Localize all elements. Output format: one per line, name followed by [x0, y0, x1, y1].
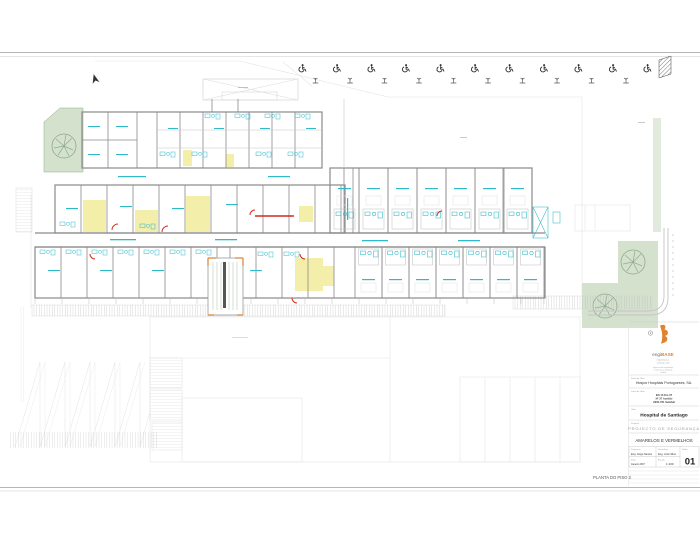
lower-level-outline [10, 307, 580, 462]
sheet-number: 01 [685, 457, 696, 468]
wheelchair-icon [299, 64, 306, 72]
bollard-icon [347, 78, 353, 83]
bollard-icon [382, 78, 388, 83]
accessible-parking-row [299, 64, 651, 83]
svg-text:Desenhou: Desenhou [658, 449, 669, 451]
building-walls [16, 79, 545, 304]
bollard-icon [554, 78, 560, 83]
wheelchair-icon [575, 64, 582, 72]
svg-text:EN 10 Km 37: EN 10 Km 37 [656, 393, 673, 397]
drawing-date: Janeiro 2007 [631, 463, 645, 466]
stair-core [208, 258, 243, 315]
wheelchair-icon [540, 64, 547, 72]
svg-text:Data: Data [631, 459, 636, 462]
bollard-icon [416, 78, 422, 83]
brand-text: engiBASE [652, 352, 673, 357]
drawing-scale: 1:100 [666, 462, 674, 466]
client-label: Dono da Obra [631, 377, 646, 380]
svg-text:engenharia e: engenharia e [657, 359, 671, 362]
bollard-icon [485, 78, 491, 83]
drawing-title: AMARELOS E VERMELHOS [635, 438, 692, 443]
svg-text:Escala: Escala [658, 460, 665, 462]
engibase-logo: engiBASE engenharia e sistemas, lda proj… [648, 325, 674, 374]
wheelchair-icon [333, 64, 340, 72]
wheelchair-icon [368, 64, 375, 72]
client-name: Hospor Hospitais Portugueses, SA. [636, 381, 692, 385]
bollard-icon [589, 78, 595, 83]
bollard-icon [451, 78, 457, 83]
hatched-wall-band [32, 296, 652, 316]
sheet-border [0, 53, 700, 492]
corner-hatch-mark [659, 56, 671, 78]
tree-icon [621, 250, 645, 274]
bollard-icon [623, 78, 629, 83]
wheelchair-icon [506, 64, 513, 72]
drawn-by: Eng. José Silva [658, 452, 676, 456]
north-arrow-icon [90, 73, 99, 84]
svg-text:sistemas, lda: sistemas, lda [657, 362, 671, 365]
tree-icon [52, 134, 76, 158]
project-title: PROJECTO DE SEGURANÇA [628, 426, 700, 431]
svg-text:Nº 37 Azeitão: Nº 37 Azeitão [656, 397, 673, 401]
gray-text-marks [460, 122, 645, 138]
plan-label: PLANTA DO PISO 2 [593, 475, 632, 480]
canopy [203, 79, 298, 100]
title-table: Projectou Eng. Hugo Santos Desenhou Eng.… [629, 447, 699, 468]
wheelchair-icon [402, 64, 409, 72]
svg-text:2900-761 Setúbal: 2900-761 Setúbal [653, 400, 675, 404]
bollard-icon [520, 78, 526, 83]
title-block: engiBASE engenharia e sistemas, lda proj… [628, 322, 700, 486]
designed-by: Eng. Hugo Santos [631, 452, 653, 456]
drawing-sheet: engiBASE engenharia e sistemas, lda proj… [0, 0, 700, 550]
floor-plan-canvas: engiBASE engenharia e sistemas, lda proj… [0, 0, 700, 550]
work-title: Hospital de Santiago [640, 413, 688, 419]
svg-text:Folha: Folha [682, 449, 688, 451]
location-label: Local da Obra [631, 390, 646, 393]
wheelchair-icon [609, 64, 616, 72]
wheelchair-icon [471, 64, 478, 72]
svg-text:Projectou: Projectou [631, 448, 641, 451]
svg-text:setubal: setubal [660, 371, 667, 374]
wheelchair-icon [437, 64, 444, 72]
project-label: Projecto [631, 422, 640, 425]
work-label: Obra [631, 408, 637, 411]
wheelchair-icon [644, 64, 651, 72]
